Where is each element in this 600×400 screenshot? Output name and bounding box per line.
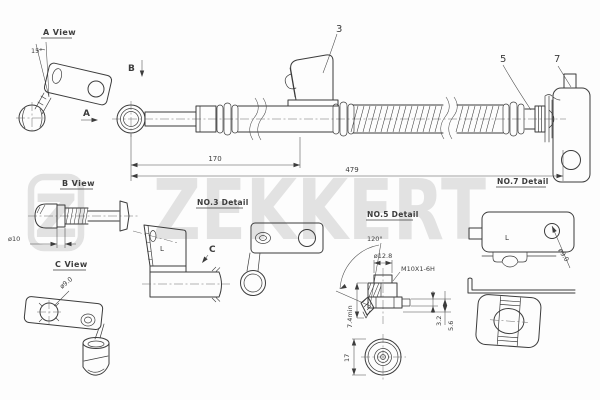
c-view: C View ø9.0 — [24, 260, 109, 375]
c-view-hole-diameter-dim: ø9.0 — [58, 275, 74, 290]
technical-drawing: Z ZEKKERT A View 15° A B — [0, 0, 600, 400]
no3-marking: L — [160, 245, 164, 253]
a-view-label: A View — [43, 28, 76, 37]
brand-watermark-text: ZEKKERT — [153, 161, 486, 259]
no5-thread-spec: M10X1-6H — [401, 265, 435, 273]
main-assembly-view: 3 5 7 170 479 — [112, 24, 590, 182]
b-view-diameter-dim: ø10 — [8, 235, 20, 243]
no5-diameter-dim: ø12.8 — [374, 252, 392, 260]
dim-479: 479 — [345, 166, 358, 174]
no5-dim-3-2: 3.2 — [435, 316, 443, 326]
callout-5: 5 — [500, 54, 506, 65]
callout-3: 3 — [336, 24, 342, 35]
no3-detail-label: NO.3 Detail — [197, 198, 249, 207]
callout-7: 7 — [554, 54, 560, 65]
no7-marking: L — [505, 234, 509, 242]
no5-cone-angle-dim: 120° — [367, 235, 383, 243]
no7-detail-label: NO.7 Detail — [497, 177, 549, 186]
a-view-direction-a: A — [83, 109, 90, 119]
a-view: A View 15° A B — [16, 28, 144, 134]
dim-170: 170 — [208, 155, 221, 163]
no5-detail-label: NO.5 Detail — [367, 210, 419, 219]
no5-min-height-dim: 7.4min — [346, 305, 354, 328]
a-view-direction-b: B — [128, 64, 135, 74]
no7-hole-diameter-dim: ø9.0 — [556, 247, 570, 263]
b-view-label: B View — [62, 179, 95, 188]
no5-dim-17: 17 — [343, 354, 351, 362]
no5-dim-5-6: 5.6 — [447, 321, 455, 331]
no3-direction-c: C — [209, 245, 216, 255]
c-view-label: C View — [55, 260, 88, 269]
drawing-canvas: Z ZEKKERT A View 15° A B — [0, 0, 600, 400]
